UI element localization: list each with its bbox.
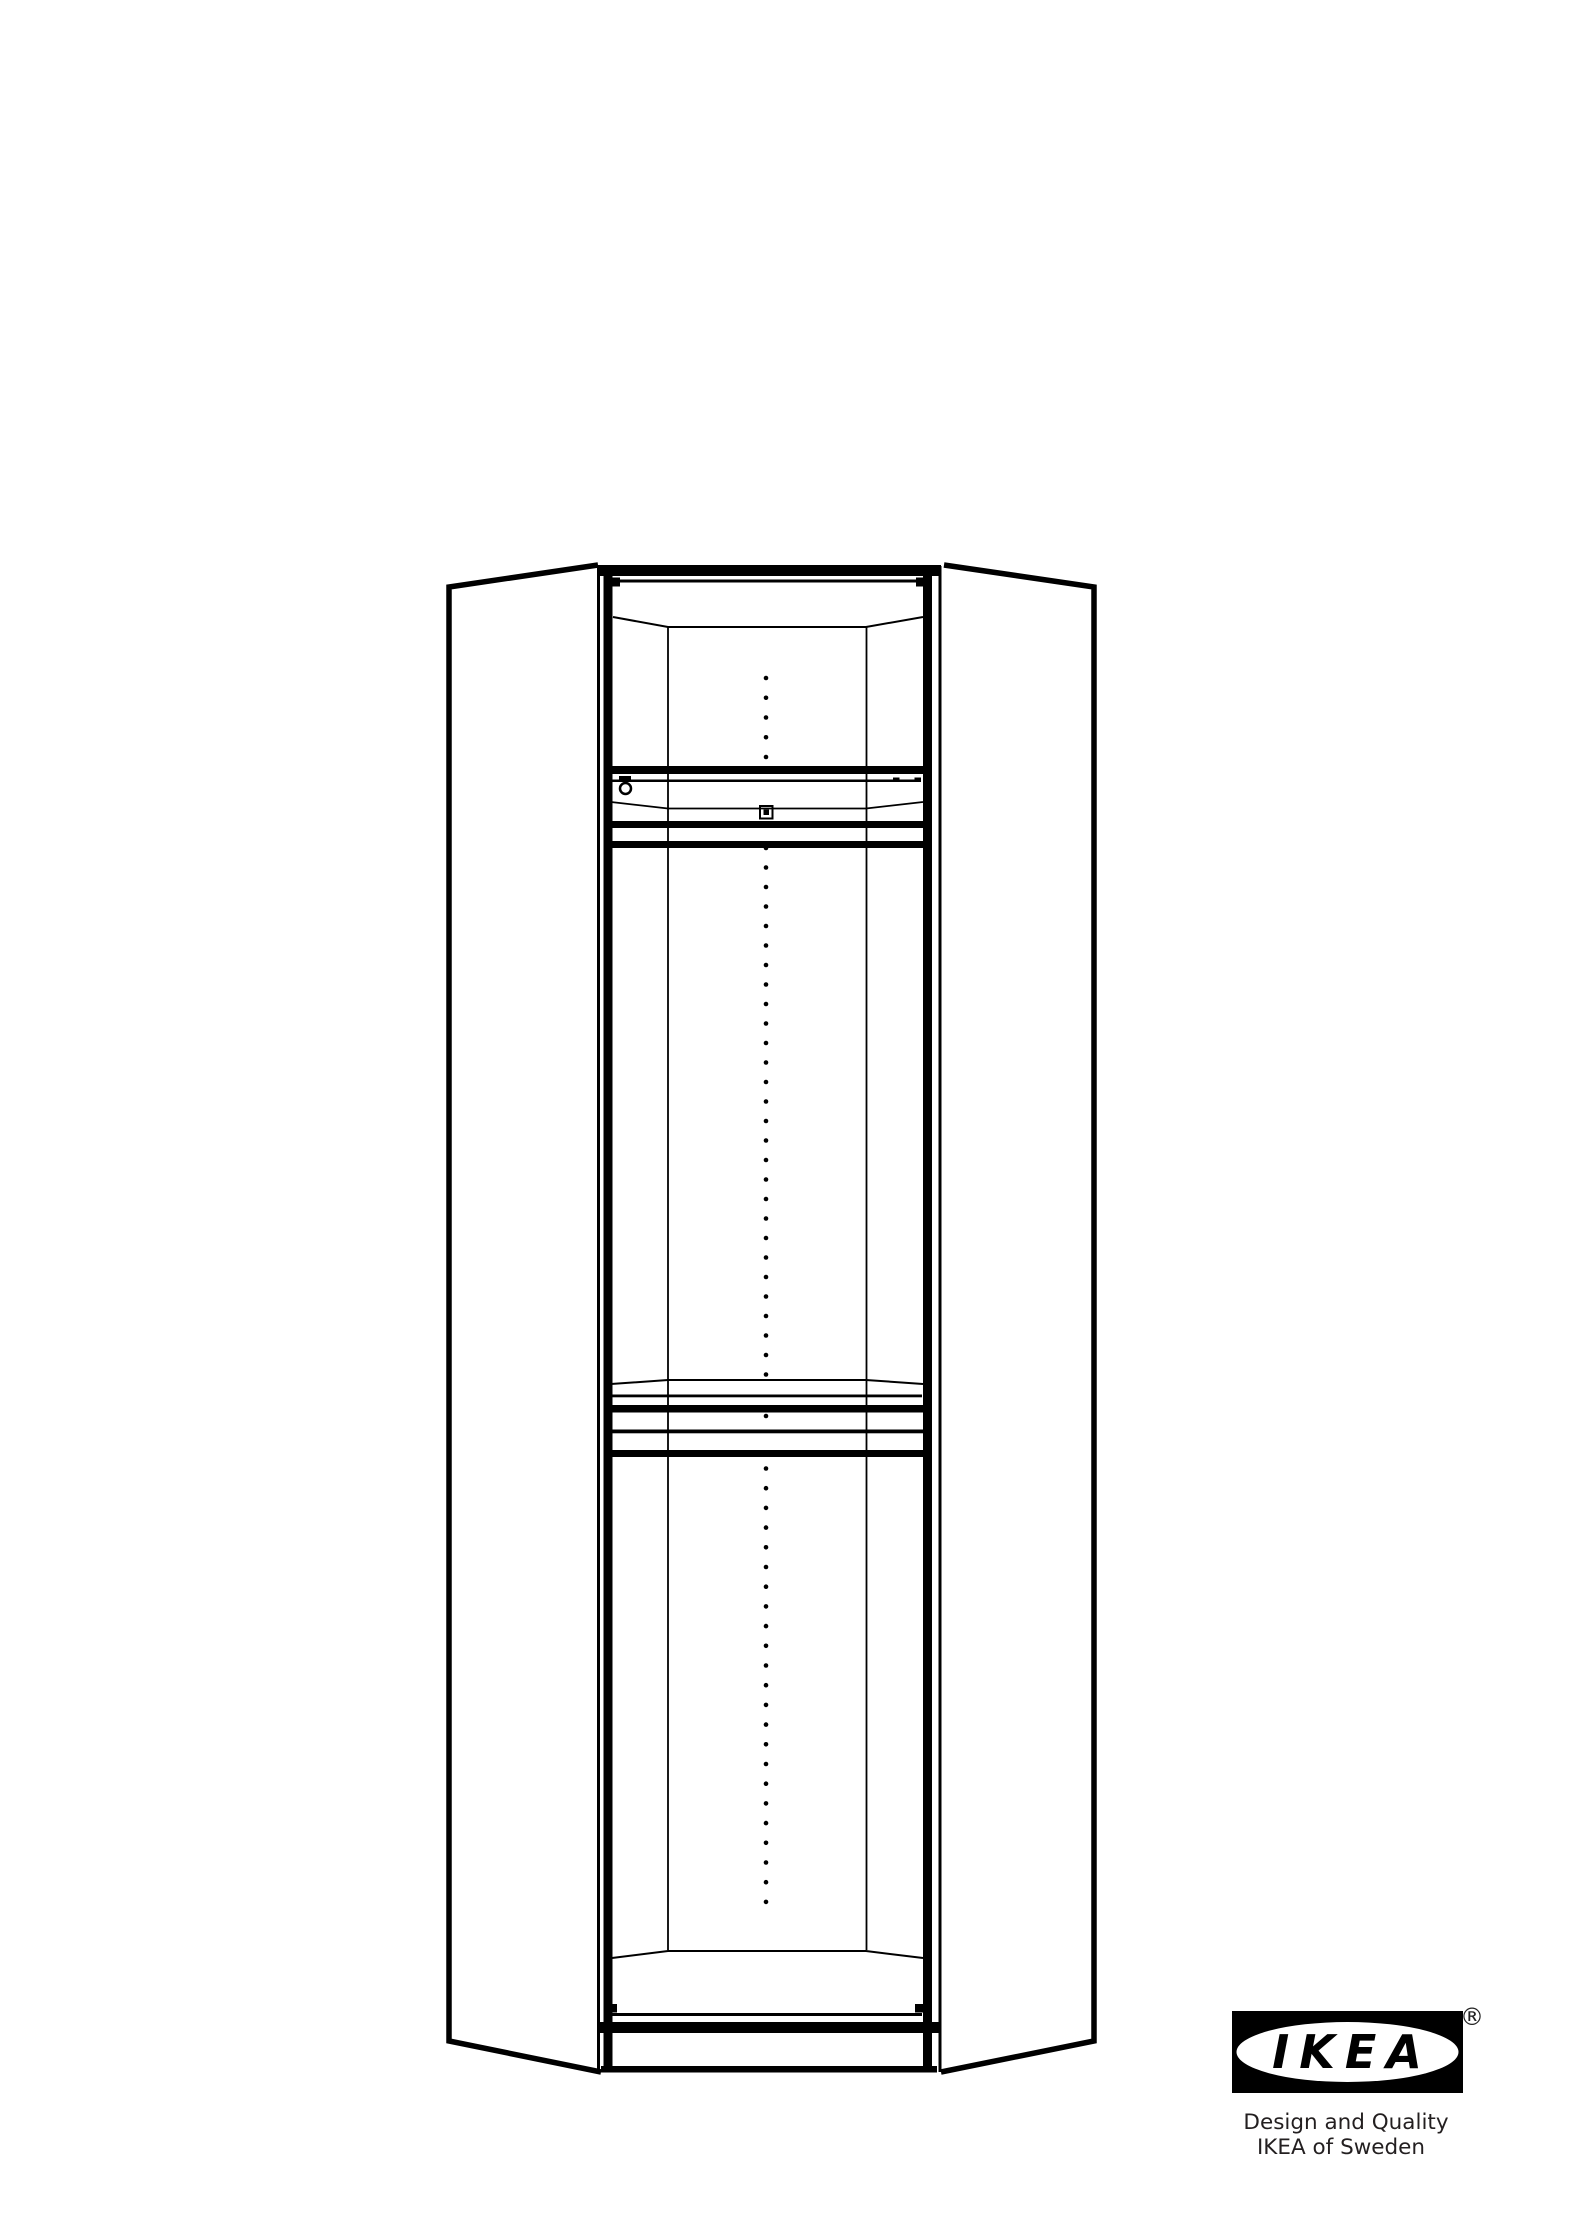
bottom-section-holes — [764, 1722, 769, 1727]
bottom-section-holes — [764, 1565, 769, 1570]
wardrobe-frame — [449, 565, 1094, 2073]
middle-section-holes — [764, 1021, 769, 1026]
tagline-line-2: IKEA of Sweden — [1257, 2135, 1425, 2160]
back-wall-connector-core — [764, 810, 770, 816]
middle-section-holes — [764, 963, 769, 968]
bottom-section-holes — [764, 1703, 769, 1708]
bottom-section-holes — [764, 1821, 769, 1826]
upper-shelf-front-edge — [606, 766, 928, 774]
middle-section-holes — [764, 1333, 769, 1338]
rail-right-screw-a — [893, 778, 900, 783]
top-rail — [613, 580, 923, 583]
tagline-line-1: Design and Quality — [1243, 2110, 1448, 2135]
ikea-wordmark: IKEA — [1272, 2025, 1432, 2079]
middle-section-holes — [764, 865, 769, 870]
bottom-section-holes — [764, 1644, 769, 1649]
rail-right-screw-b — [915, 778, 922, 783]
middle-section-holes — [764, 1255, 769, 1260]
bottom-section-holes — [764, 1604, 769, 1609]
back-wall-top-edge — [613, 617, 923, 627]
bottom-section-holes — [764, 1781, 769, 1786]
lower-shelf-assembly — [606, 1380, 928, 1457]
middle-section-holes — [764, 1099, 769, 1104]
top-section-holes — [764, 676, 769, 681]
middle-section-holes — [764, 1158, 769, 1163]
upper-divider-shelf-top — [606, 821, 928, 828]
middle-section-holes — [764, 1002, 769, 1007]
plinth-bottom-edge — [601, 2066, 937, 2073]
top-section-holes — [764, 695, 769, 700]
middle-section-holes — [764, 1138, 769, 1143]
bottom-section-holes — [764, 1762, 769, 1767]
bottom-section-holes — [764, 1525, 769, 1530]
middle-section-holes — [764, 1060, 769, 1065]
ikea-logo: IKEA ® Design and Quality IKEA of Sweden — [1232, 2003, 1484, 2160]
middle-section-holes — [764, 1080, 769, 1085]
middle-section-holes — [764, 1041, 769, 1046]
middle-section-holes — [764, 885, 769, 890]
middle-section-holes — [764, 1177, 769, 1182]
bottom-section-holes — [764, 1466, 769, 1471]
left-side-panel — [449, 565, 601, 2072]
bottom-section-holes — [764, 1486, 769, 1491]
bottom-rail-right-bracket — [915, 2004, 925, 2013]
middle-section-holes — [764, 982, 769, 987]
bottom-section-holes — [764, 1900, 769, 1905]
middle-section-holes — [764, 1119, 769, 1124]
middle-section-holes — [764, 943, 769, 948]
middle-section-holes — [764, 1197, 769, 1202]
top-rail-left-bracket — [611, 578, 620, 587]
middle-section-holes — [764, 1372, 769, 1377]
top-section-holes — [764, 735, 769, 740]
bottom-section-holes — [764, 1506, 769, 1511]
top-rail-right-bracket — [916, 578, 925, 587]
back-wall-bottom-edge — [612, 1951, 923, 1958]
corner-wardrobe-illustration: IKEA ® Design and Quality IKEA of Sweden — [0, 0, 1576, 2233]
bottom-rail-left-bracket — [607, 2004, 617, 2013]
bottom-rail — [611, 2013, 922, 2016]
manual-page: IKEA ® Design and Quality IKEA of Sweden — [0, 0, 1576, 2233]
upper-shelf-assembly — [606, 766, 928, 848]
clothes-rail — [611, 780, 920, 783]
right-side-panel — [941, 565, 1094, 2072]
lower-shelf-front-edge — [606, 1405, 928, 1413]
lower-divider-shelf-top — [606, 1430, 928, 1434]
bottom-section-holes — [764, 1624, 769, 1629]
bottom-section-holes — [764, 1841, 769, 1846]
middle-section-holes — [764, 846, 769, 851]
lower-shelf-back-edge — [611, 1380, 923, 1384]
rail-hook-icon — [620, 783, 631, 794]
middle-section-holes — [764, 904, 769, 909]
bottom-section-holes — [764, 1801, 769, 1806]
bottom-section-holes — [764, 1683, 769, 1688]
middle-section-holes — [764, 1275, 769, 1280]
shelf-pin-hole-columns — [764, 676, 769, 1905]
bottom-section-holes — [764, 1742, 769, 1747]
bottom-section-holes — [764, 1880, 769, 1885]
rail-left-fitting — [619, 776, 631, 781]
lower-shelf-rear-line — [611, 1395, 922, 1398]
cabinet-bottom — [597, 1951, 941, 2073]
registered-trademark-icon: ® — [1460, 2003, 1484, 2031]
lower-shelf-center-pin — [764, 1414, 769, 1419]
bottom-section-holes — [764, 1584, 769, 1589]
lower-divider-shelf-bottom — [606, 1450, 928, 1457]
middle-section-holes — [764, 1236, 769, 1241]
middle-section-holes — [764, 1216, 769, 1221]
middle-section-holes — [764, 1294, 769, 1299]
bottom-section-holes — [764, 1663, 769, 1668]
top-section-holes — [764, 755, 769, 760]
top-section-holes — [764, 715, 769, 720]
bottom-section-holes — [764, 1860, 769, 1865]
middle-section-holes — [764, 1353, 769, 1358]
top-panel-front-edge — [597, 565, 941, 576]
bottom-panel-front-edge — [597, 2022, 941, 2033]
middle-section-holes — [764, 1314, 769, 1319]
bottom-section-holes — [764, 1545, 769, 1550]
middle-section-holes — [764, 924, 769, 929]
